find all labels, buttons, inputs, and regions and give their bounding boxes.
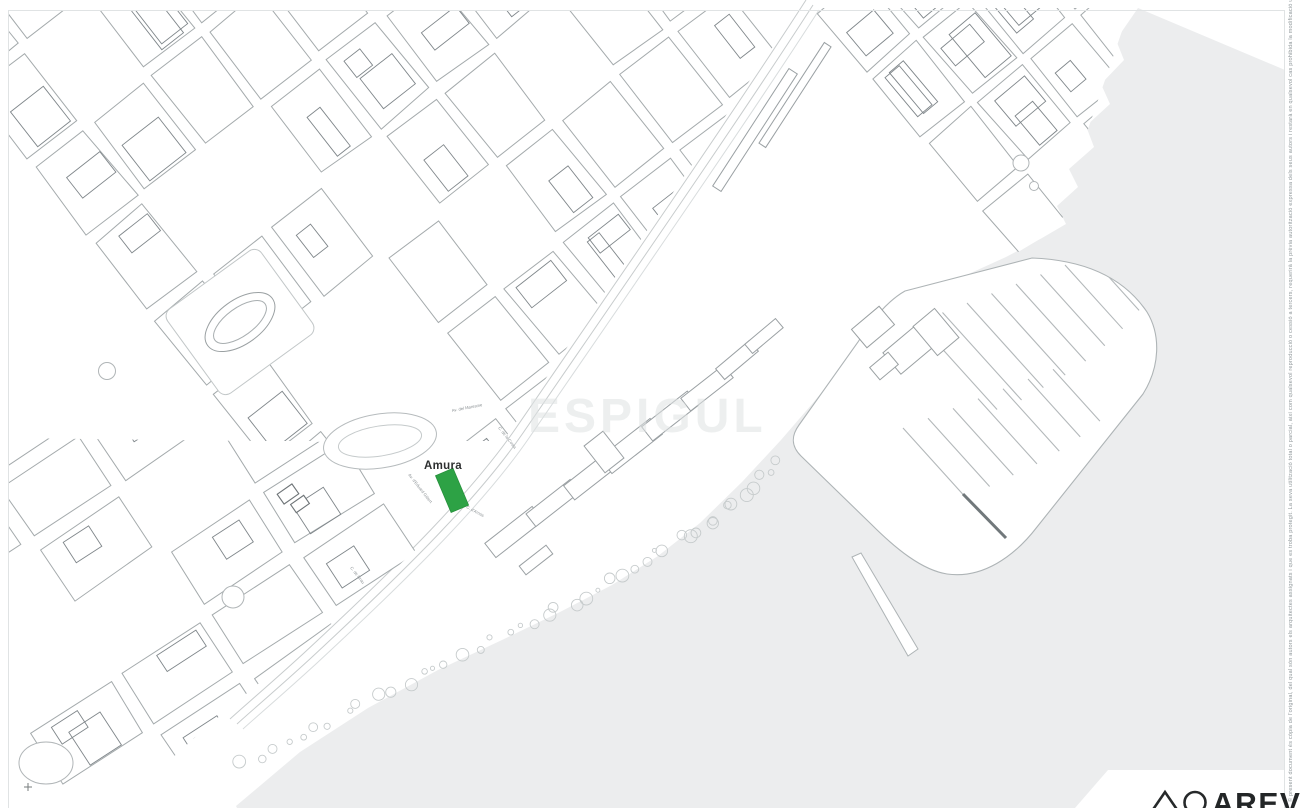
roundabout <box>222 586 244 608</box>
roundabout <box>1013 155 1029 171</box>
amura-label: Amura <box>424 460 462 472</box>
margin-disclaimer: © present document és còpia de l'origina… <box>1287 0 1294 802</box>
site-plan-map: ESPIGUL Amura Av. del Maresme C. de la C… <box>0 0 1300 808</box>
logo-wordmark: AREV <box>1212 788 1300 808</box>
site-plan-page: ESPIGUL Amura Av. del Maresme C. de la C… <box>0 0 1300 808</box>
watermark-text: ESPIGUL <box>528 390 767 443</box>
roundabout <box>1030 182 1039 191</box>
roundabout <box>99 363 116 380</box>
park-oval <box>19 742 73 784</box>
